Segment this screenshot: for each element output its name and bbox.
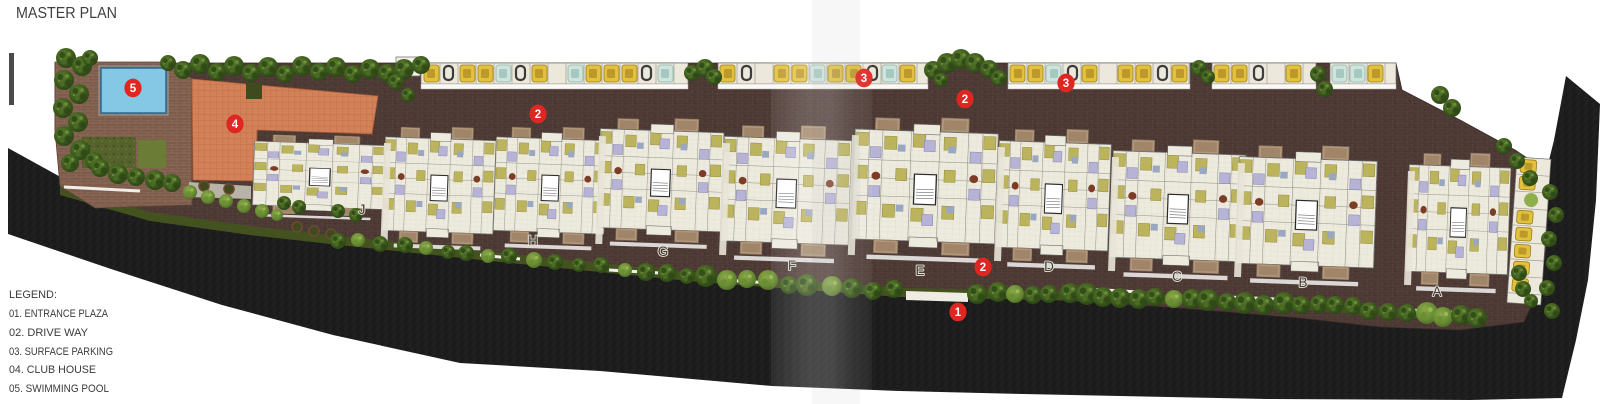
svg-text:B: B [1298, 275, 1307, 290]
svg-text:02. DRIVE WAY: 02. DRIVE WAY [9, 327, 89, 339]
svg-text:01. ENTRANCE PLAZA: 01. ENTRANCE PLAZA [9, 308, 109, 320]
svg-text:5: 5 [130, 83, 137, 95]
svg-text:4: 4 [232, 119, 239, 131]
svg-text:2: 2 [962, 94, 968, 106]
svg-text:3: 3 [1063, 78, 1069, 90]
svg-text:03. SURFACE PARKING: 03. SURFACE PARKING [9, 346, 113, 358]
svg-text:2: 2 [980, 262, 986, 274]
svg-text:LEGEND:: LEGEND: [9, 289, 57, 301]
svg-text:04. CLUB HOUSE: 04. CLUB HOUSE [9, 364, 96, 376]
svg-text:C: C [1172, 269, 1182, 284]
svg-text:MASTER PLAN: MASTER PLAN [16, 5, 117, 22]
svg-text:E: E [915, 263, 924, 278]
svg-text:2: 2 [535, 109, 541, 121]
svg-text:05. SWIMMING POOL: 05. SWIMMING POOL [9, 383, 109, 395]
svg-text:D: D [1044, 259, 1054, 274]
svg-text:G: G [658, 244, 669, 259]
svg-text:H: H [528, 233, 538, 248]
svg-text:A: A [1432, 284, 1441, 299]
svg-text:J: J [359, 202, 366, 217]
svg-text:1: 1 [955, 307, 962, 319]
